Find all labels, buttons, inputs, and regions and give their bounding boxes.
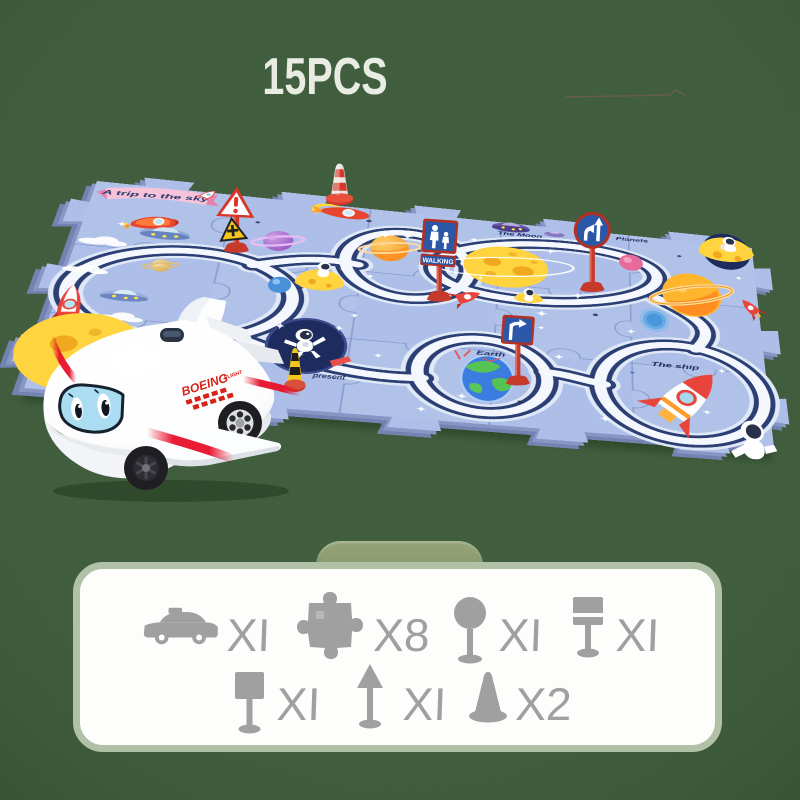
svg-text:XI: XI — [615, 609, 660, 661]
svg-text:XI: XI — [402, 678, 447, 730]
svg-text:X8: X8 — [373, 609, 431, 661]
svg-text:X2: X2 — [515, 678, 573, 730]
svg-text:XI: XI — [498, 609, 543, 661]
svg-text:XI: XI — [226, 609, 271, 661]
svg-text:XI: XI — [276, 678, 321, 730]
